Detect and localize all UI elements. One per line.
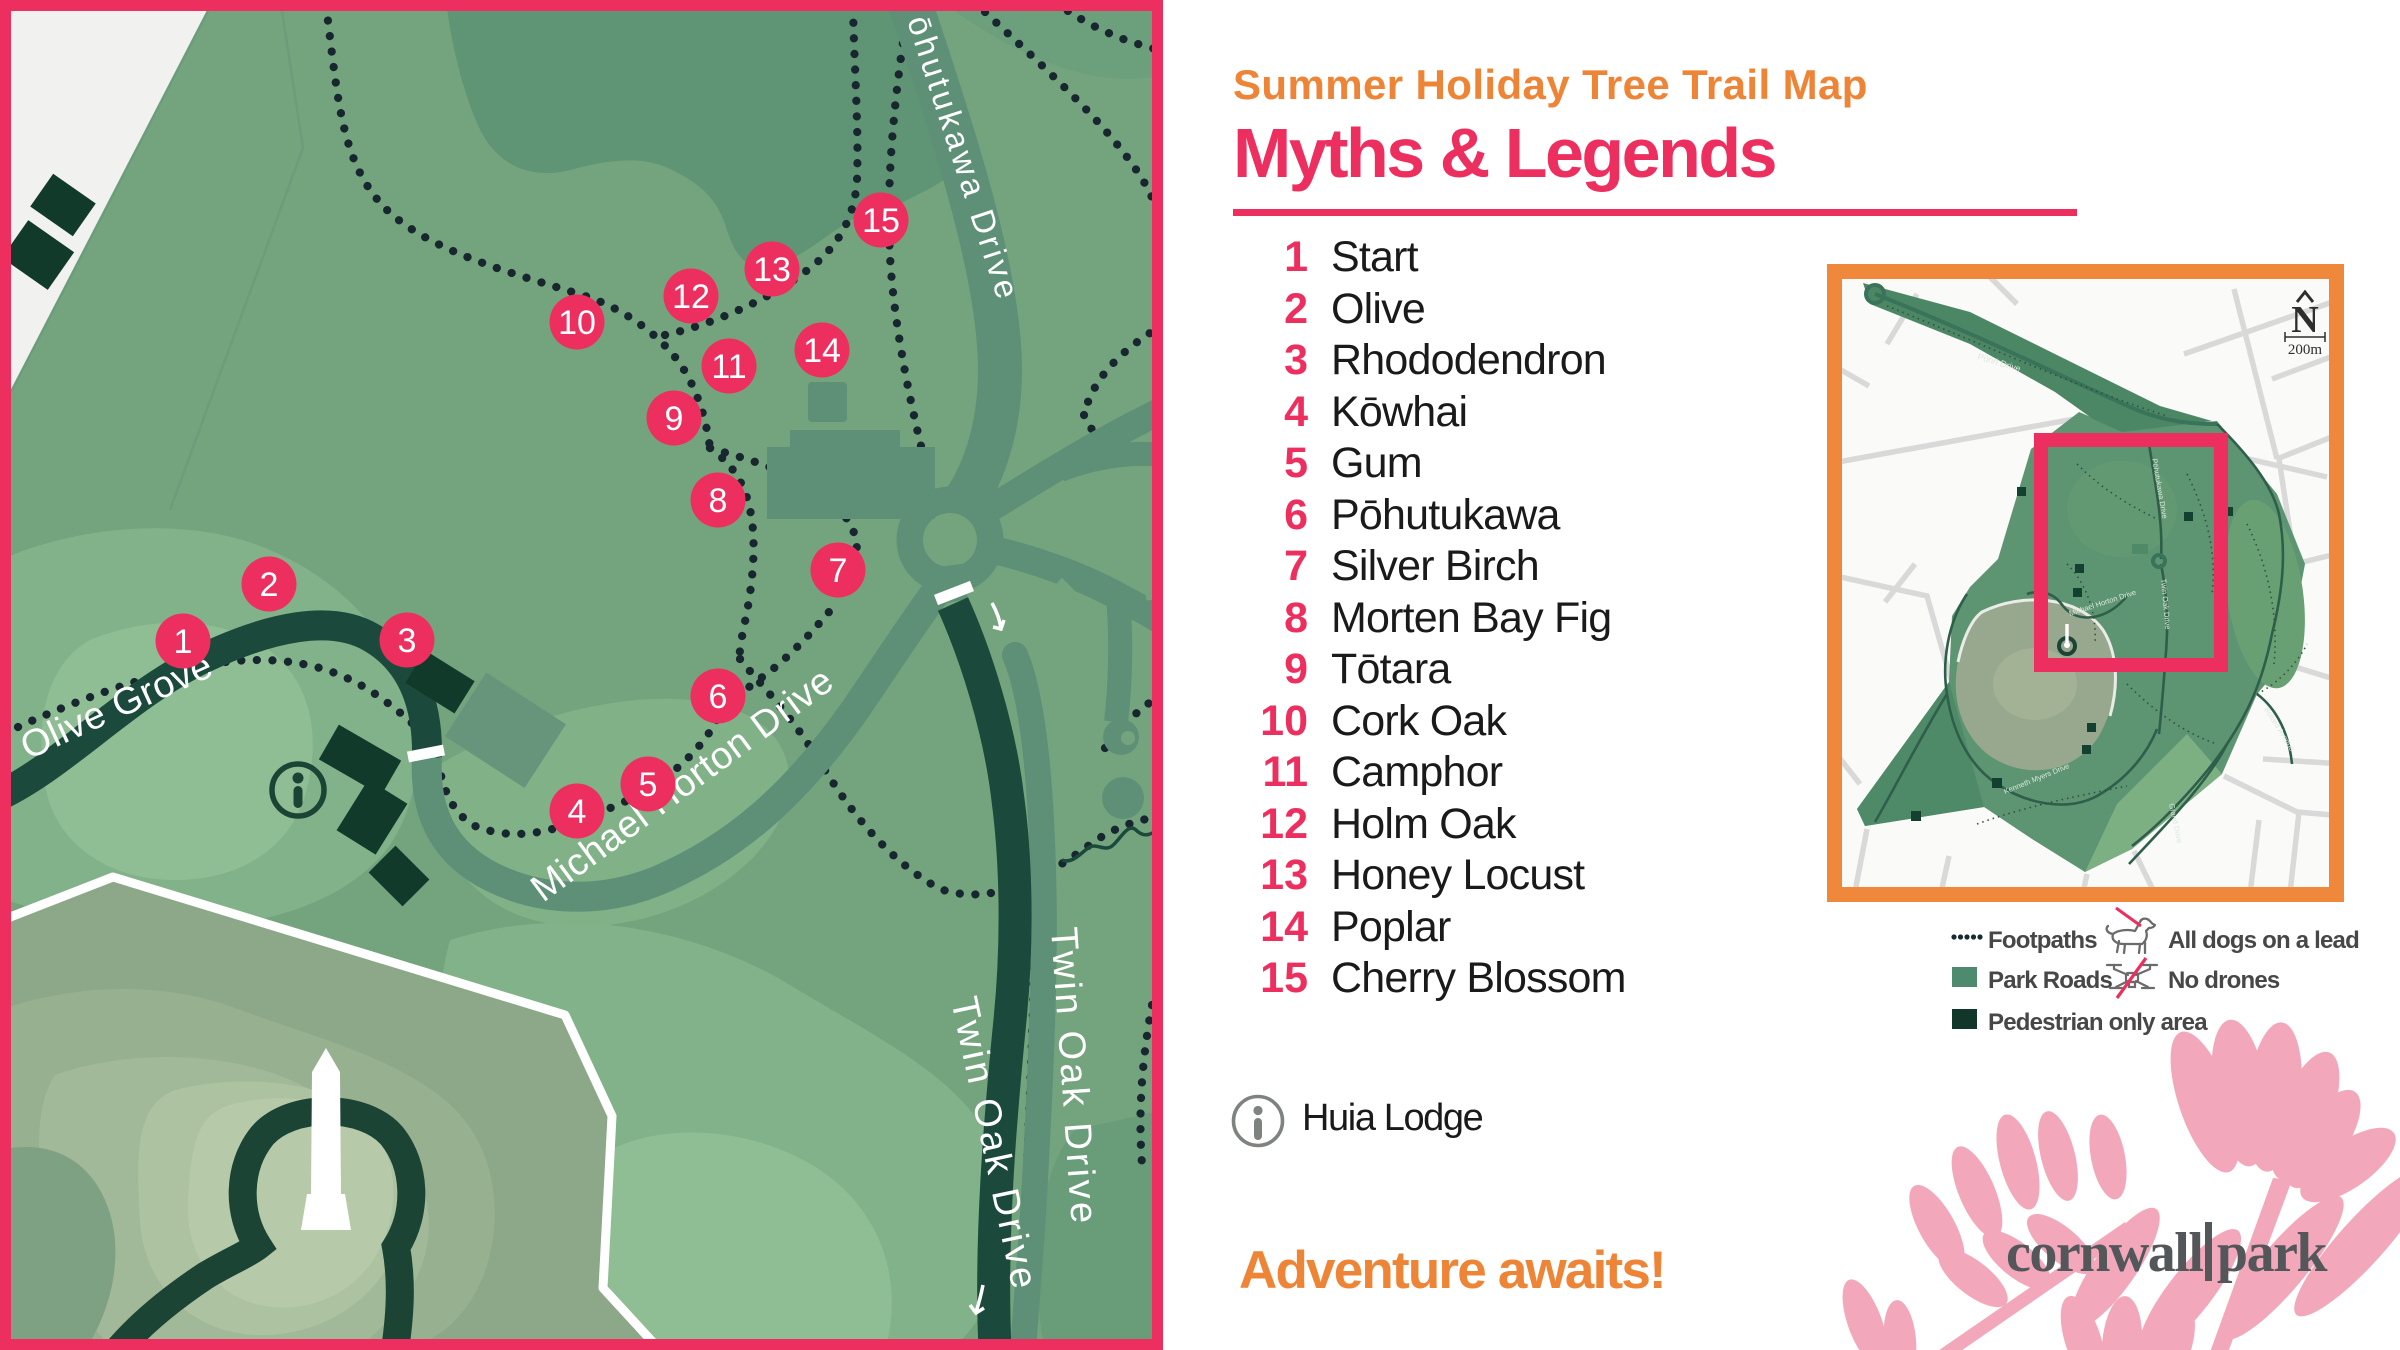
- svg-text:10: 10: [558, 304, 596, 342]
- svg-text:11: 11: [711, 348, 746, 386]
- svg-text:8: 8: [709, 482, 728, 520]
- svg-text:1: 1: [174, 623, 193, 661]
- svg-text:200m: 200m: [2288, 342, 2323, 358]
- svg-text:4: 4: [568, 793, 587, 831]
- svg-text:12: 12: [672, 278, 710, 316]
- svg-text:9: 9: [665, 400, 684, 438]
- svg-text:No drones: No drones: [2168, 967, 2280, 994]
- svg-text:Footpaths: Footpaths: [1988, 927, 2097, 954]
- svg-text:13: 13: [753, 251, 791, 289]
- svg-text:3: 3: [398, 622, 417, 660]
- svg-text:Park Roads: Park Roads: [1988, 967, 2113, 994]
- svg-text:7: 7: [829, 552, 848, 590]
- svg-text:15: 15: [862, 202, 900, 240]
- svg-text:6: 6: [709, 678, 728, 716]
- svg-text:2: 2: [260, 566, 279, 604]
- svg-text:5: 5: [639, 766, 658, 804]
- svg-text:14: 14: [803, 332, 841, 370]
- svg-text:All dogs on a lead: All dogs on a lead: [2168, 927, 2359, 954]
- svg-text:N: N: [2291, 299, 2318, 341]
